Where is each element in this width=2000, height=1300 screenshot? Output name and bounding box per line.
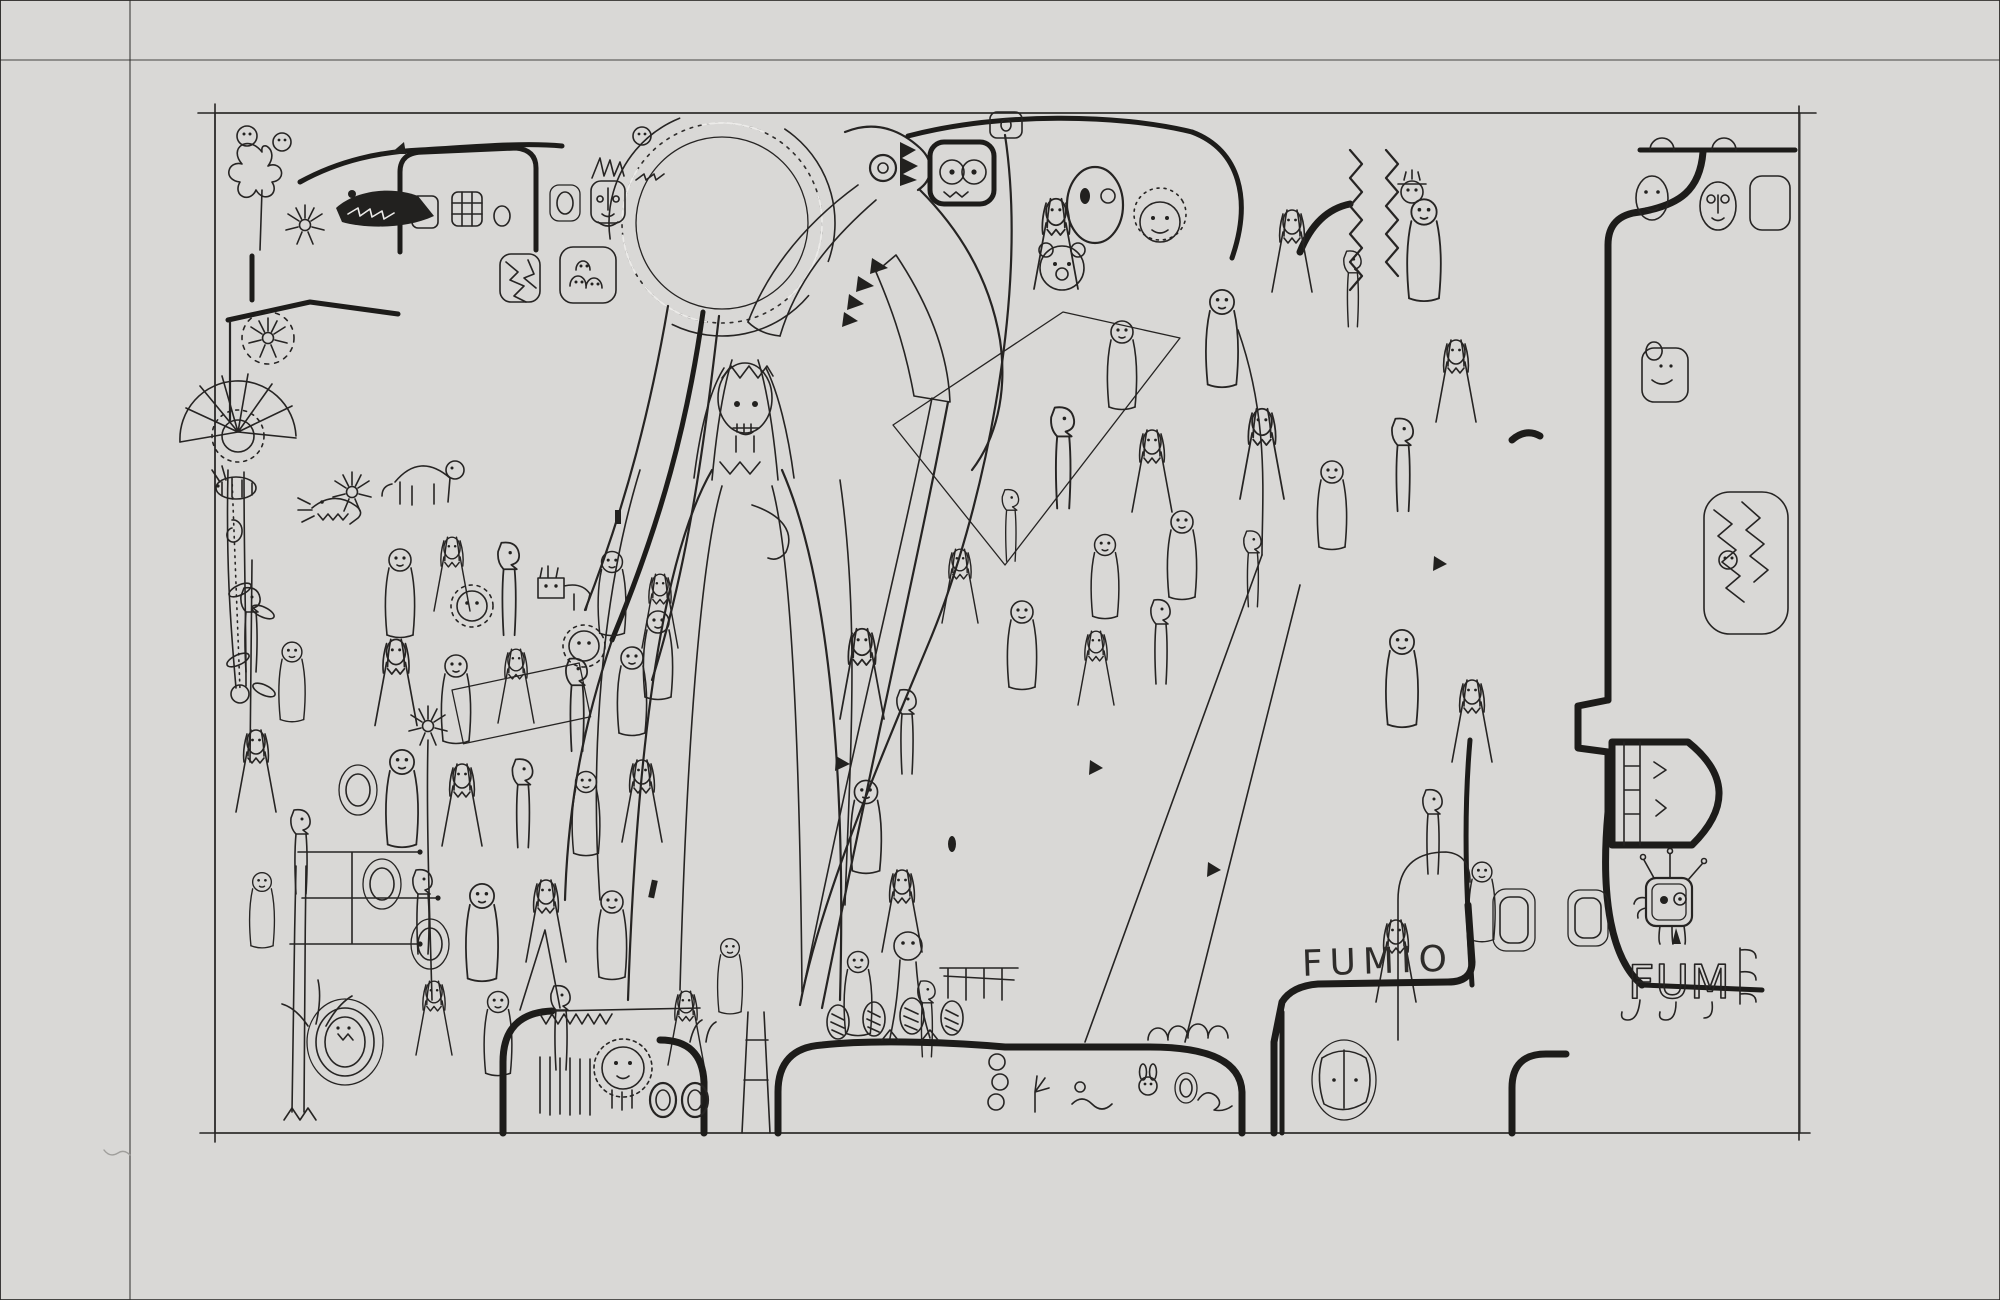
doodle-figure xyxy=(1132,430,1172,512)
doodle-figure xyxy=(1386,630,1418,727)
bird-dark-crest xyxy=(900,142,918,186)
zigzag-window xyxy=(1704,492,1788,634)
doodle-figure xyxy=(250,873,275,948)
signature-fumio: FUMIO xyxy=(1301,939,1454,985)
doodle-figure xyxy=(498,649,534,723)
doodle-figure xyxy=(597,891,626,980)
doodle-figure xyxy=(466,884,498,981)
doodle-figure xyxy=(840,629,884,719)
doodle-figure xyxy=(442,764,482,846)
bird-scale-chest xyxy=(876,255,950,402)
doodle-figure xyxy=(1423,790,1442,874)
doodle-figure xyxy=(566,658,587,751)
bottom-wall-left xyxy=(503,930,770,1133)
worm-squiggle xyxy=(1198,1093,1232,1111)
lion-face xyxy=(594,1039,652,1110)
building-right xyxy=(1398,138,1795,1040)
stick-figure-feet xyxy=(284,1108,316,1120)
monkey-window xyxy=(1642,348,1688,402)
doodle-figure xyxy=(1051,407,1074,508)
doodle-figure xyxy=(526,880,566,962)
doodle-figure xyxy=(1344,251,1361,327)
bug-creature xyxy=(212,466,256,499)
doodle-figure xyxy=(1392,418,1413,511)
windows-bottom-right xyxy=(1493,889,1608,951)
doodle-figure xyxy=(279,642,305,722)
doodle-figure xyxy=(1272,210,1312,292)
spiky-hair-face xyxy=(1140,202,1180,242)
doodle-figure xyxy=(1107,321,1136,410)
bunny-doodle xyxy=(1139,1064,1157,1095)
sun-motif xyxy=(563,64,881,900)
doodle-figure xyxy=(1244,531,1261,607)
doodle-figure xyxy=(1317,461,1346,550)
scattered-windows-left xyxy=(284,765,449,1120)
doodle-figure xyxy=(236,730,276,812)
bird-eye xyxy=(870,155,896,181)
doodle-figure xyxy=(498,542,519,635)
doodle-figure xyxy=(1078,631,1114,705)
doodle-figure xyxy=(1452,680,1492,762)
pencil-scuff xyxy=(104,1150,130,1155)
ink-accents xyxy=(615,433,1540,899)
doodle-figure xyxy=(512,759,532,848)
doodle-figure xyxy=(1407,199,1441,301)
ladder-gap xyxy=(742,1012,770,1133)
monogram-text: FUM xyxy=(1628,955,1731,1009)
robot-motif: FUM xyxy=(1622,849,1756,1021)
blank-face xyxy=(1067,167,1123,243)
doodle-figure xyxy=(1436,340,1476,422)
doodle-figure xyxy=(551,986,570,1070)
doodle-figure xyxy=(1002,490,1018,562)
artwork-canvas: FUM FUMIO xyxy=(0,0,2000,1300)
doodle-figure xyxy=(385,549,414,638)
lady-figure xyxy=(628,360,841,1000)
doodle-figure xyxy=(897,690,916,774)
doodle-figure xyxy=(375,639,417,725)
doodle-figure xyxy=(882,870,922,952)
crown-bumps xyxy=(1148,1024,1228,1040)
doodle-figure xyxy=(386,750,418,847)
artwork-photo: FUM FUMIO xyxy=(0,0,2000,1300)
doodle-figure xyxy=(1007,601,1036,690)
doodle-figure xyxy=(1091,535,1119,619)
spiky-blob-window xyxy=(307,999,383,1085)
dark-hook xyxy=(1300,204,1350,252)
top-edge-figures xyxy=(930,112,1426,290)
fan-flower xyxy=(180,374,296,703)
doodle-figure xyxy=(942,549,978,623)
doodle-figure xyxy=(1151,600,1170,684)
building-top-left xyxy=(228,126,664,420)
doodle-figure xyxy=(617,647,646,736)
doodle-figure xyxy=(416,981,452,1055)
paper-background xyxy=(0,0,2000,1300)
doodle-figure xyxy=(1167,511,1196,600)
d-arch-shape xyxy=(1612,742,1719,845)
doodle-figure xyxy=(1206,290,1238,387)
caterpillar-creature xyxy=(298,498,361,524)
doodle-figure xyxy=(718,939,743,1014)
oval-face-window xyxy=(1312,1040,1376,1120)
